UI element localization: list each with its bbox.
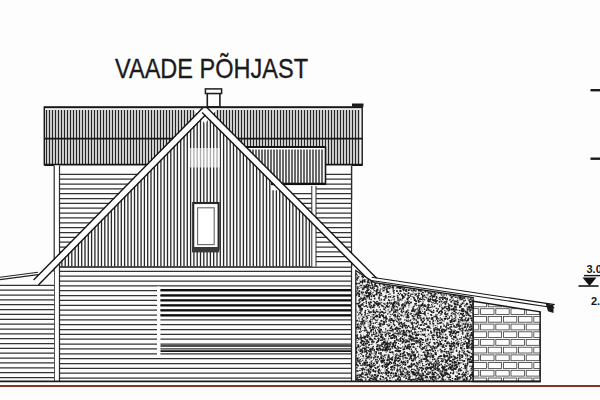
svg-text:2.: 2. [591,295,600,307]
svg-text:VAADE PÕHJAST: VAADE PÕHJAST [115,52,308,84]
svg-text:3.0: 3.0 [587,263,600,275]
